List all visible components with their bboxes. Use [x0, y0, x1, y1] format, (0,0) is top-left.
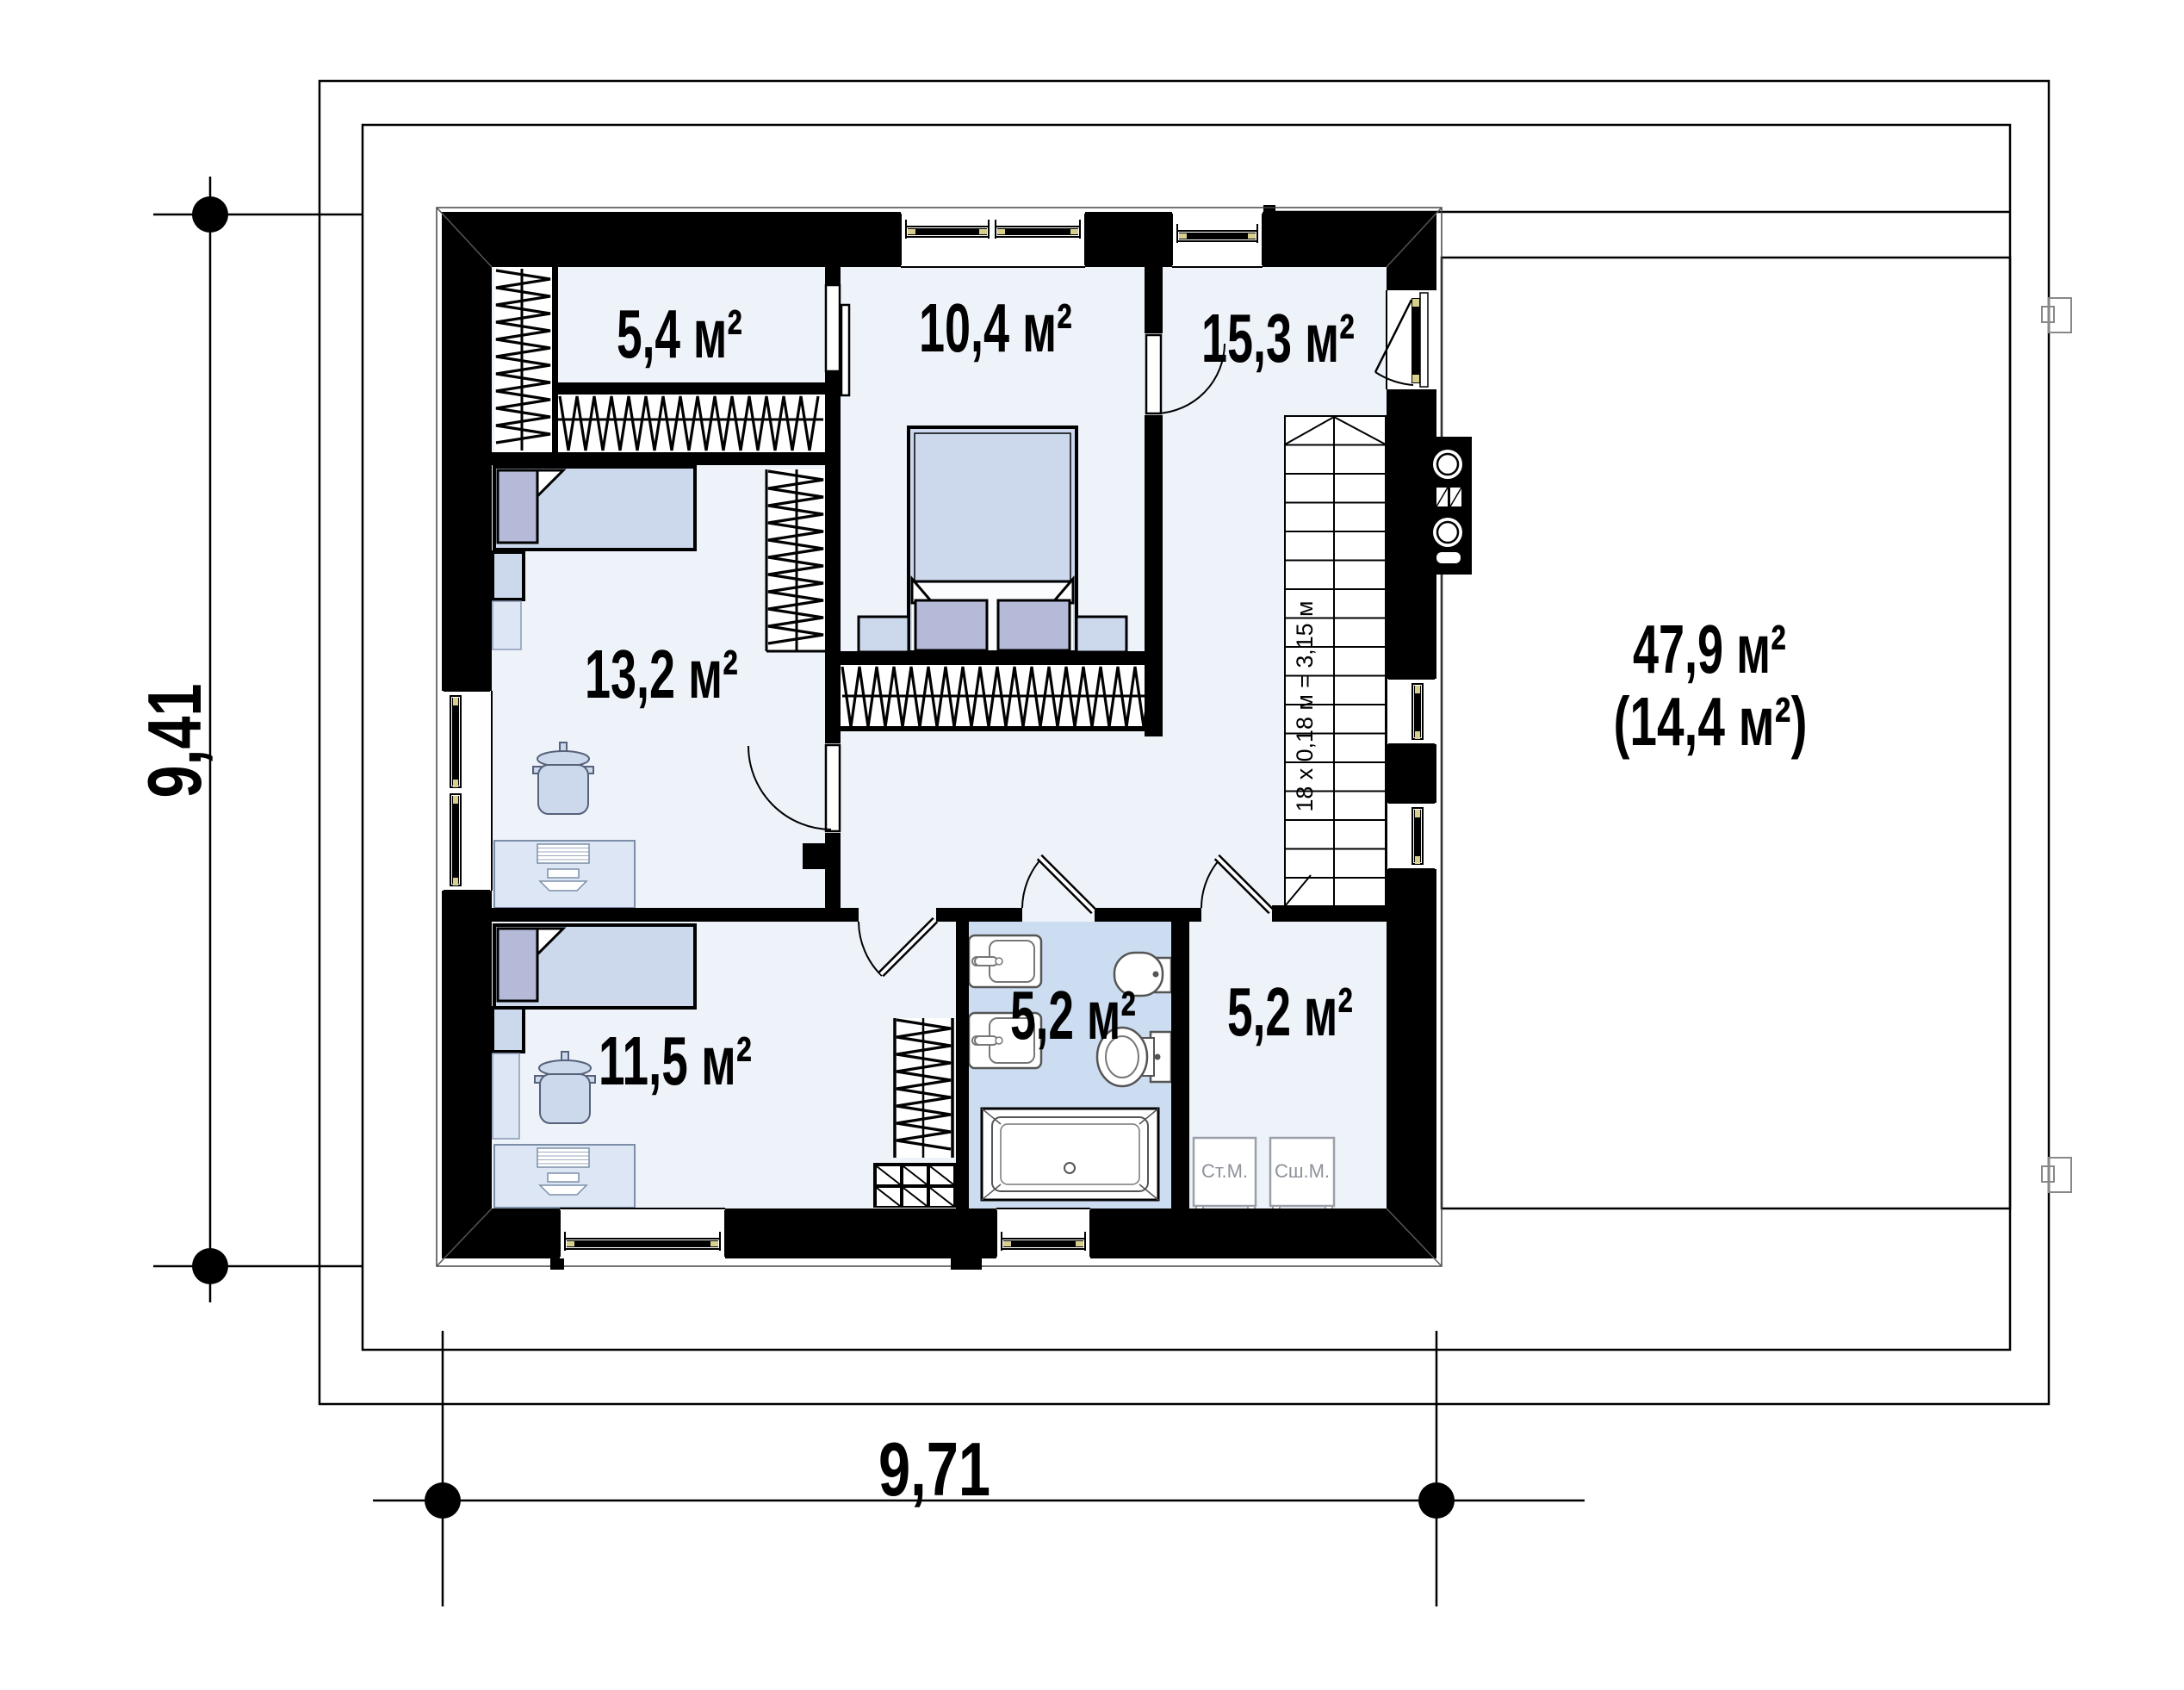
svg-text:Ст.М.: Ст.М. — [1201, 1160, 1248, 1182]
svg-text:9,41: 9,41 — [132, 684, 217, 798]
svg-text:9,71: 9,71 — [878, 1426, 990, 1512]
svg-text:47,9 м²: 47,9 м² — [1633, 611, 1786, 687]
svg-text:(14,4 м²): (14,4 м²) — [1614, 683, 1808, 760]
svg-text:5,2 м²: 5,2 м² — [1010, 977, 1136, 1053]
svg-text:11,5 м²: 11,5 м² — [599, 1022, 752, 1099]
svg-text:18 х 0,18 м = 3,15 м: 18 х 0,18 м = 3,15 м — [1292, 601, 1318, 812]
svg-text:10,4 м²: 10,4 м² — [919, 289, 1072, 366]
svg-text:5,4 м²: 5,4 м² — [617, 295, 742, 372]
svg-text:Сш.М.: Сш.М. — [1275, 1160, 1330, 1182]
svg-text:13,2 м²: 13,2 м² — [585, 636, 738, 712]
svg-text:5,2 м²: 5,2 м² — [1227, 973, 1353, 1050]
svg-text:15,3 м²: 15,3 м² — [1201, 300, 1355, 376]
